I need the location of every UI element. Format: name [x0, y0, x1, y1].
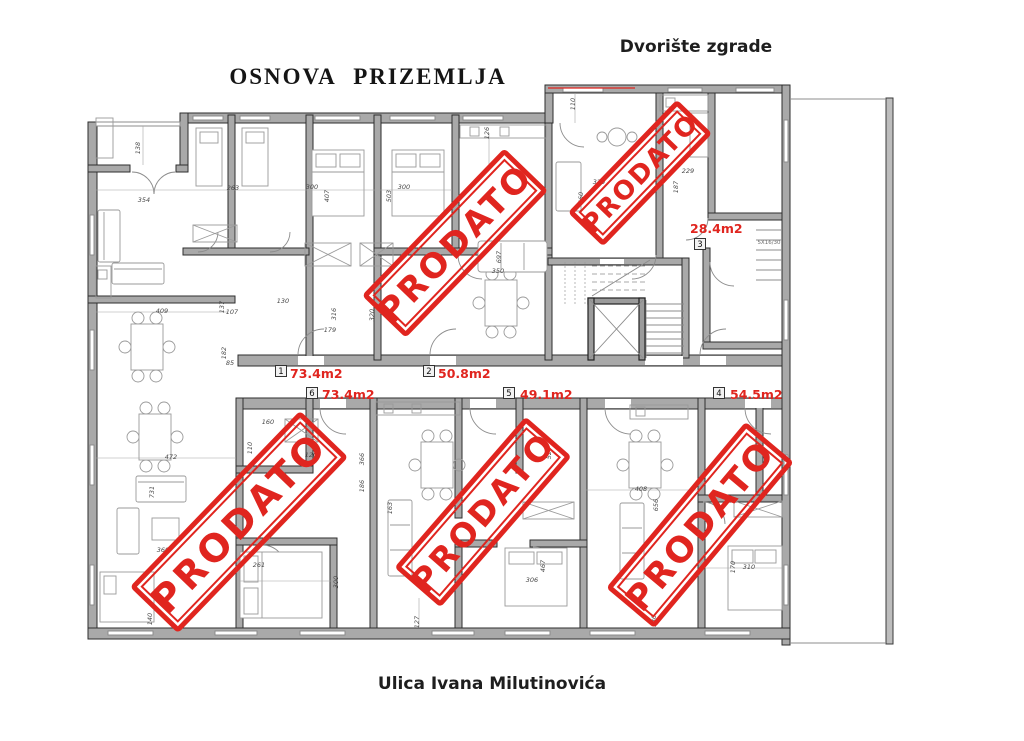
apartment-number: 5: [506, 389, 511, 399]
street-label: Ulica Ivana Milutinovića: [378, 674, 606, 694]
dimension-label: 263: [227, 184, 239, 192]
sofa-icon: [112, 263, 164, 284]
dimension-label: 472: [165, 453, 177, 461]
dimension-label: 107: [226, 308, 239, 316]
dimension-label: 697: [495, 250, 503, 263]
dimension-label: 163: [386, 502, 394, 514]
kitchen-counter-icon: [96, 266, 111, 298]
dining-table-icon: [473, 268, 529, 338]
door-arc: [154, 172, 176, 194]
dimension-label: 306: [526, 576, 538, 584]
dimension-label: 316: [330, 308, 338, 320]
door-arc: [132, 172, 154, 194]
dimension-label: 140: [146, 613, 154, 625]
bed-icon: [242, 128, 268, 186]
dining-table-icon: [119, 312, 175, 382]
dimension-label: 261: [253, 561, 265, 569]
dimension-label: 127: [413, 615, 421, 628]
exterior-stairs: 5X16/30: [756, 230, 782, 280]
apartment-area: 73.4m2: [322, 387, 375, 402]
dimension-label: 407: [323, 189, 331, 202]
bed-icon: [312, 150, 364, 216]
dimension-label: 170: [729, 561, 737, 573]
dimension-label: 110: [569, 98, 577, 110]
dimension-label: 408: [635, 485, 647, 493]
cafe-table-icon: [597, 128, 637, 146]
dimension-label: 300: [332, 576, 340, 588]
door-arc: [470, 408, 496, 434]
apartment-number: 1: [278, 367, 283, 377]
dimension-label: 187: [672, 180, 680, 193]
dimension-label: 300: [306, 183, 318, 191]
courtyard-label: Dvorište zgrade: [620, 37, 772, 57]
bed-icon: [728, 546, 782, 610]
property-line: [790, 98, 893, 644]
floor-plan-drawing: OSNOVA PRIZEMLJA Dvorište zgrade Ulica I…: [0, 0, 1024, 741]
wardrobe-icon: [523, 502, 574, 519]
apartment-area: 50.8m2: [438, 366, 491, 381]
dimension-label: 85: [226, 359, 234, 367]
dimension-label: 138: [134, 142, 142, 154]
coffee-table-icon: [152, 518, 179, 540]
armchair-icon: [117, 508, 139, 554]
apartment-label-1: 173.4m2: [276, 366, 343, 382]
dimension-label: 310: [743, 563, 755, 571]
dimension-label: 182: [220, 347, 228, 359]
stair-note: 5X16/30: [757, 240, 781, 246]
apartment-area: 28.4m2: [690, 221, 743, 236]
dimension-label: 320: [368, 309, 376, 321]
dimension-label: 503: [385, 190, 393, 202]
dimension-label: 110: [246, 442, 254, 454]
apartment-number: 6: [309, 389, 314, 399]
apartment-number: 4: [716, 389, 721, 399]
page-title: OSNOVA PRIZEMLJA: [229, 64, 506, 89]
bed-icon: [196, 128, 222, 186]
central-staircase: [565, 260, 684, 358]
dimension-label: 300: [398, 183, 410, 191]
apartment-area: 49.1m2: [520, 387, 573, 402]
dimension-label: 130: [277, 297, 289, 305]
dimension-label: 160: [262, 418, 274, 426]
apartment-area: 54.5m2: [730, 387, 783, 402]
dimension-label: 186: [358, 480, 366, 492]
sofa-icon: [98, 210, 120, 262]
dimension-label: 354: [138, 196, 150, 204]
dimension-label: 467: [539, 559, 547, 572]
apartment-label-2: 250.8m2: [424, 366, 491, 382]
apartment-area: 73.4m2: [290, 366, 343, 381]
dimension-label: 229: [682, 167, 694, 175]
dimension-label: 409: [156, 307, 168, 315]
kitchen-counter-icon: [460, 125, 546, 138]
sofa-icon: [136, 476, 186, 502]
dimension-label: 179: [324, 326, 336, 334]
dimension-label: 731: [148, 486, 156, 498]
dining-table-icon: [127, 402, 183, 472]
elevator-shaft: [588, 298, 645, 360]
dimension-label: 366: [358, 453, 366, 465]
apartment-number: 3: [697, 240, 702, 250]
apartment-number: 2: [426, 367, 431, 377]
dimension-label: 126: [483, 127, 491, 139]
dimension-label: 350: [492, 267, 504, 275]
door-arc: [710, 262, 734, 286]
door-arc: [560, 123, 584, 147]
door-arc: [430, 329, 456, 355]
door-arc: [605, 408, 631, 434]
floor-plan-page: OSNOVA PRIZEMLJA Dvorište zgrade Ulica I…: [0, 0, 1024, 741]
dimension-label: 656: [652, 499, 660, 511]
apartment-label-3: 328.4m2: [690, 221, 743, 250]
door-arc: [320, 408, 346, 434]
